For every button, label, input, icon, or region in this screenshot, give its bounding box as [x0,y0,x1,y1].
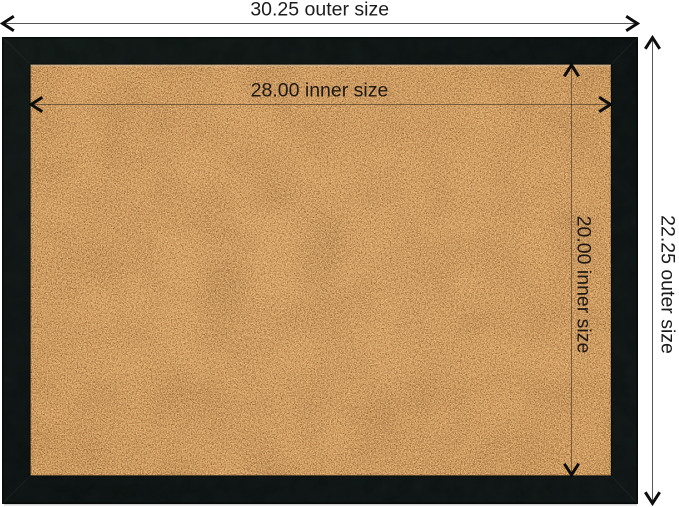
svg-text:28.00 inner size: 28.00 inner size [251,80,389,102]
svg-text:22.25 outer size: 22.25 outer size [657,215,679,354]
svg-text:20.00 inner size: 20.00 inner size [573,216,595,354]
svg-text:30.25 outer size: 30.25 outer size [250,0,389,21]
